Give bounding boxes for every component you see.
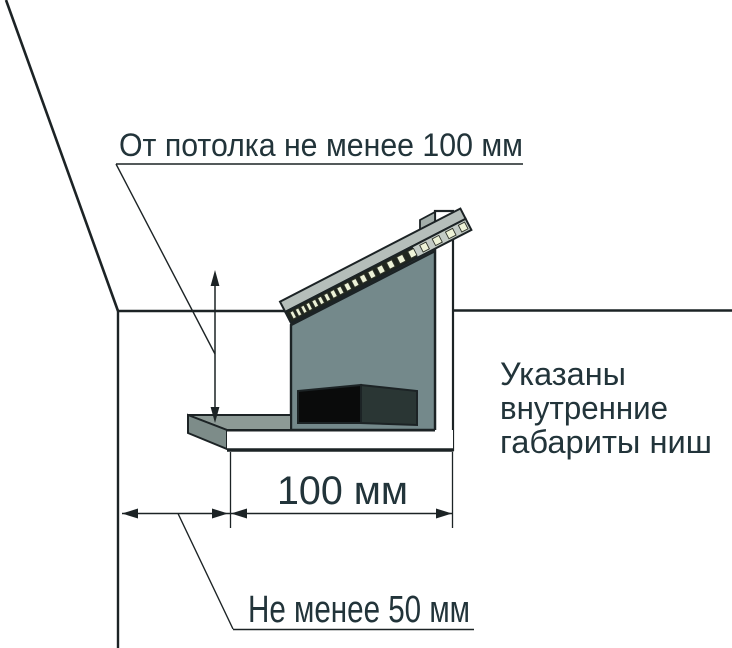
diagram-canvas: От потолка не менее 100 мм 100 мм Не мен…	[0, 0, 732, 648]
driver-box	[298, 385, 417, 425]
wall-offset-leader	[178, 514, 233, 630]
side-note-line-2: внутренние	[500, 390, 668, 426]
width-dimension-text: 100 мм	[277, 469, 408, 513]
ceiling-note-leader	[116, 164, 215, 354]
corner-edge-line	[6, 0, 118, 311]
shelf-front-face	[227, 430, 453, 449]
arrow-up-head	[211, 270, 220, 286]
ceiling-note-text: От потолка не менее 100 мм	[119, 127, 523, 163]
niche-drawing	[188, 209, 471, 450]
side-note-line-1: Указаны	[500, 356, 626, 392]
ceiling-niche-diagram: От потолка не менее 100 мм 100 мм Не мен…	[0, 0, 732, 648]
driver-box-front	[298, 385, 361, 423]
vertical-dimension-arrow	[211, 270, 220, 423]
wall-offset-note-text: Не менее 50 мм	[248, 589, 470, 631]
driver-box-side	[361, 385, 417, 425]
side-note-line-3: габариты ниш	[500, 424, 712, 460]
